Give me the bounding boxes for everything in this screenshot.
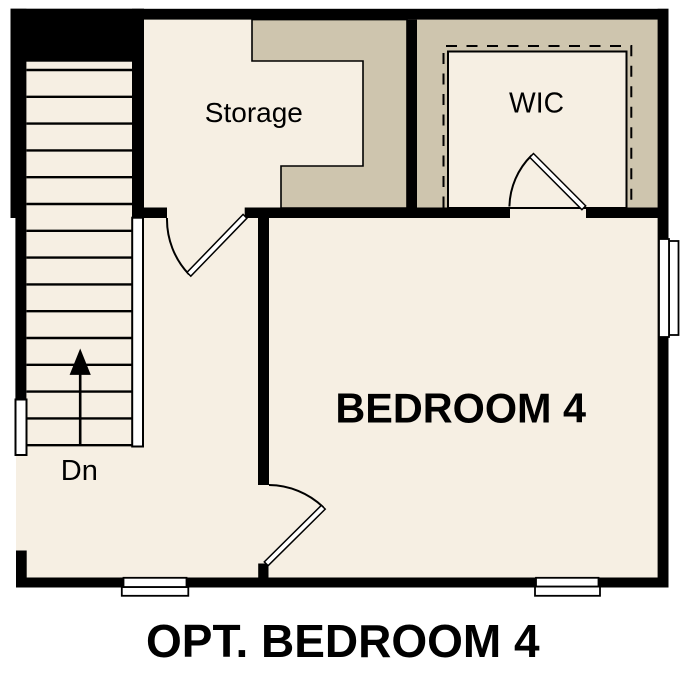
svg-text:OPT. BEDROOM 4: OPT. BEDROOM 4	[146, 615, 540, 667]
svg-text:WIC: WIC	[509, 86, 564, 118]
svg-text:BEDROOM 4: BEDROOM 4	[335, 386, 586, 432]
svg-text:Storage: Storage	[205, 97, 303, 128]
svg-text:Dn: Dn	[61, 455, 98, 487]
